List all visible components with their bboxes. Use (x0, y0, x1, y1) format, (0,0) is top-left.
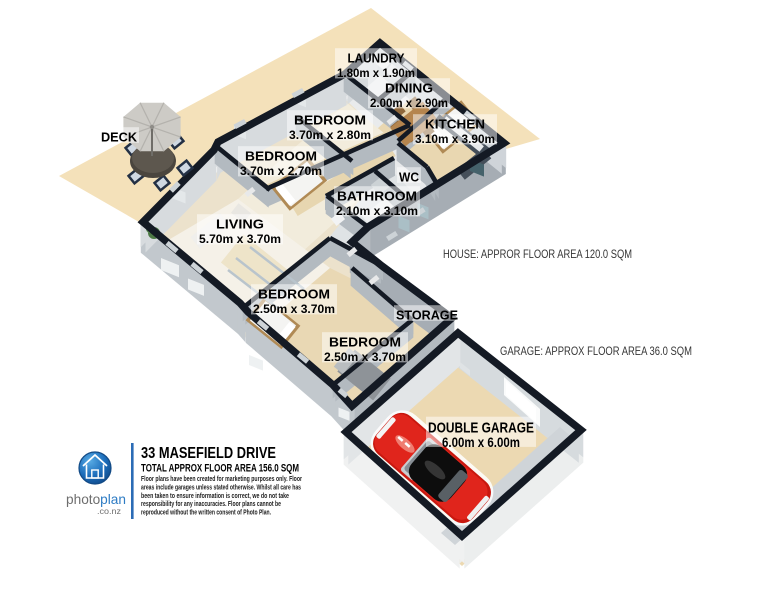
svg-text:BEDROOM: BEDROOM (294, 113, 366, 127)
svg-text:LAUNDRY: LAUNDRY (348, 51, 406, 65)
svg-text:HOUSE: APPROR FLOOR AREA 120.0: HOUSE: APPROR FLOOR AREA 120.0 SQM (443, 247, 632, 261)
svg-text:DINING: DINING (385, 81, 433, 95)
svg-text:33 MASEFIELD DRIVE: 33 MASEFIELD DRIVE (141, 445, 276, 462)
svg-text:5.70m x 3.70m: 5.70m x 3.70m (199, 232, 281, 246)
svg-text:3.10m x 3.90m: 3.10m x 3.90m (415, 132, 495, 146)
svg-text:1.80m x 1.90m: 1.80m x 1.90m (337, 66, 415, 80)
svg-text:GARAGE: APPROX FLOOR AREA 36.0: GARAGE: APPROX FLOOR AREA 36.0 SQM (500, 344, 692, 358)
svg-text:2.00m x 2.90m: 2.00m x 2.90m (370, 96, 448, 110)
svg-text:WC: WC (399, 170, 419, 184)
svg-text:LIVING: LIVING (216, 217, 264, 231)
svg-text:2.50m x 3.70m: 2.50m x 3.70m (324, 350, 406, 364)
svg-text:DOUBLE GARAGE: DOUBLE GARAGE (428, 419, 534, 436)
svg-text:Floor plans have been created: Floor plans have been created for market… (141, 476, 302, 483)
svg-text:DECK: DECK (101, 130, 137, 144)
svg-text:BEDROOM: BEDROOM (245, 149, 317, 163)
svg-text:responsibility for any inaccur: responsibility for any inaccuracies. Flo… (141, 501, 281, 508)
svg-text:6.00m x 6.00m: 6.00m x 6.00m (442, 435, 520, 450)
svg-text:reproduced without the written: reproduced without the written consent o… (141, 510, 271, 517)
svg-text:3.70m x 2.70m: 3.70m x 2.70m (240, 164, 322, 178)
svg-text:STORAGE: STORAGE (396, 308, 458, 322)
svg-text:BEDROOM: BEDROOM (258, 287, 330, 301)
svg-text:2.10m x 3.10m: 2.10m x 3.10m (336, 204, 418, 218)
svg-text:.co.nz: .co.nz (97, 506, 121, 516)
svg-text:TOTAL APPROX FLOOR AREA 156.0: TOTAL APPROX FLOOR AREA 156.0 SQM (141, 463, 299, 475)
svg-text:BATHROOM: BATHROOM (337, 189, 417, 203)
svg-text:been taken to ensure informati: been taken to ensure information is corr… (141, 493, 289, 500)
svg-text:photoplan: photoplan (66, 491, 126, 507)
svg-text:areas include garages unless s: areas include garages unless stated othe… (141, 484, 301, 491)
svg-text:3.70m x 2.80m: 3.70m x 2.80m (289, 128, 371, 142)
svg-text:KITCHEN: KITCHEN (425, 117, 485, 131)
svg-text:2.50m x 3.70m: 2.50m x 3.70m (253, 302, 335, 316)
svg-text:BEDROOM: BEDROOM (329, 335, 401, 349)
